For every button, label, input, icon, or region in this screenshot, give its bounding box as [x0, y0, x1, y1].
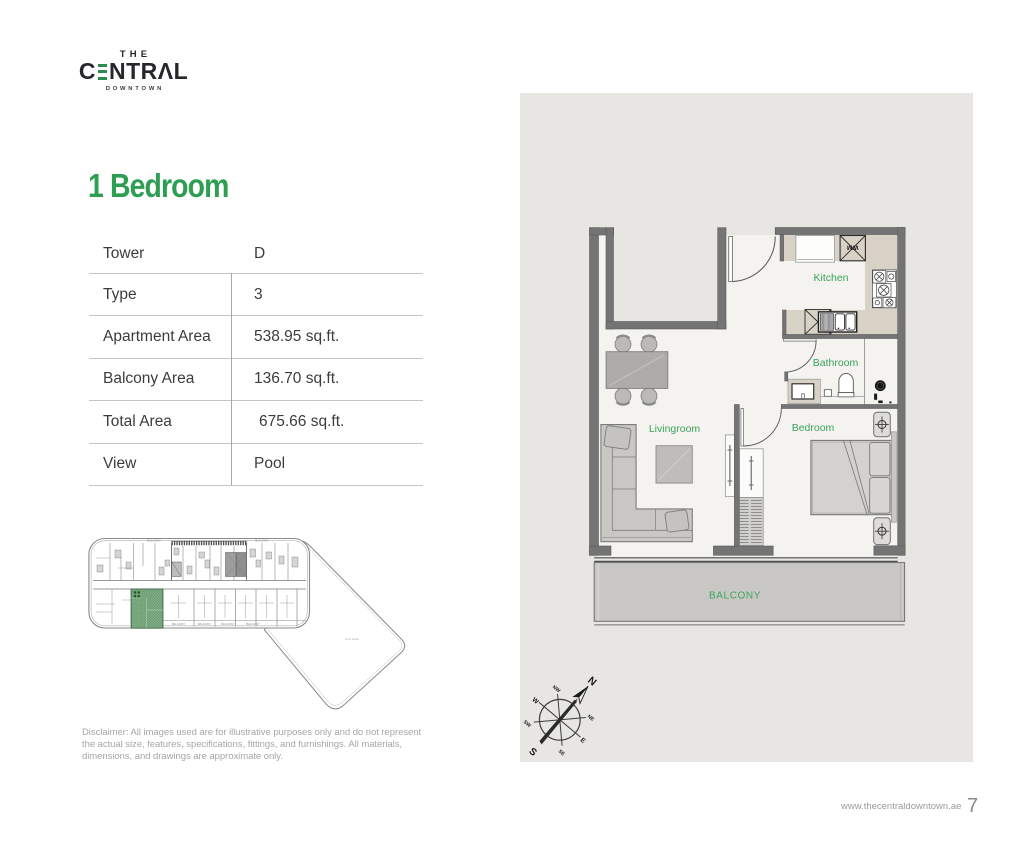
svg-text:Pool Deck: Pool Deck	[345, 637, 359, 641]
svg-text:E: E	[578, 737, 586, 746]
svg-text:NE: NE	[585, 714, 595, 723]
svg-text:NW: NW	[550, 684, 560, 694]
svg-text:Kitchen: Kitchen	[813, 272, 848, 284]
svg-text:SE: SE	[556, 749, 565, 758]
svg-text:SW: SW	[521, 719, 531, 729]
svg-text:BALCONY: BALCONY	[709, 590, 761, 601]
svg-text:BALCONY: BALCONY	[147, 539, 161, 543]
svg-text:Bedroom: Bedroom	[791, 422, 834, 434]
svg-text:WM: WM	[846, 244, 858, 251]
svg-text:Livingroom: Livingroom	[648, 423, 700, 435]
svg-text:BALCONY: BALCONY	[172, 622, 186, 626]
svg-text:N: N	[585, 674, 599, 688]
svg-text:BALCONY: BALCONY	[255, 539, 269, 543]
svg-text:BALCONY: BALCONY	[221, 622, 235, 626]
svg-text:W: W	[530, 696, 540, 706]
svg-text:BALCONY: BALCONY	[198, 622, 212, 626]
svg-text:S: S	[526, 746, 538, 759]
svg-text:BALCONY: BALCONY	[246, 622, 260, 626]
svg-text:Bathroom: Bathroom	[812, 357, 858, 369]
